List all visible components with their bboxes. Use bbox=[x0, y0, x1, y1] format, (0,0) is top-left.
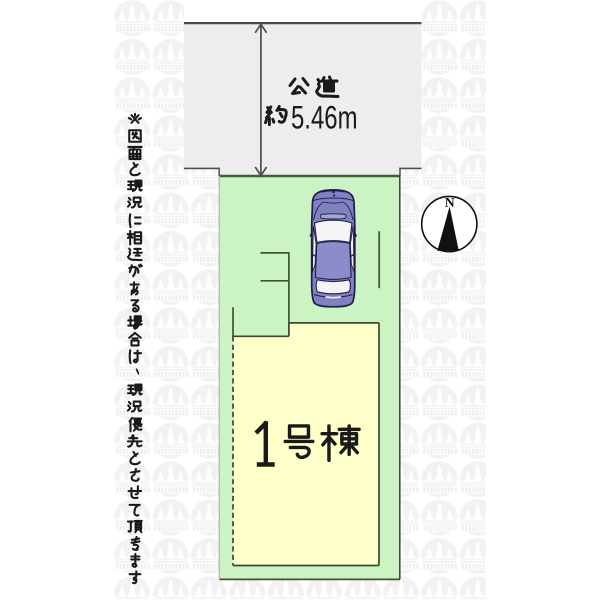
svg-text:5.46m: 5.46m bbox=[291, 100, 358, 136]
svg-text:N: N bbox=[445, 195, 455, 210]
